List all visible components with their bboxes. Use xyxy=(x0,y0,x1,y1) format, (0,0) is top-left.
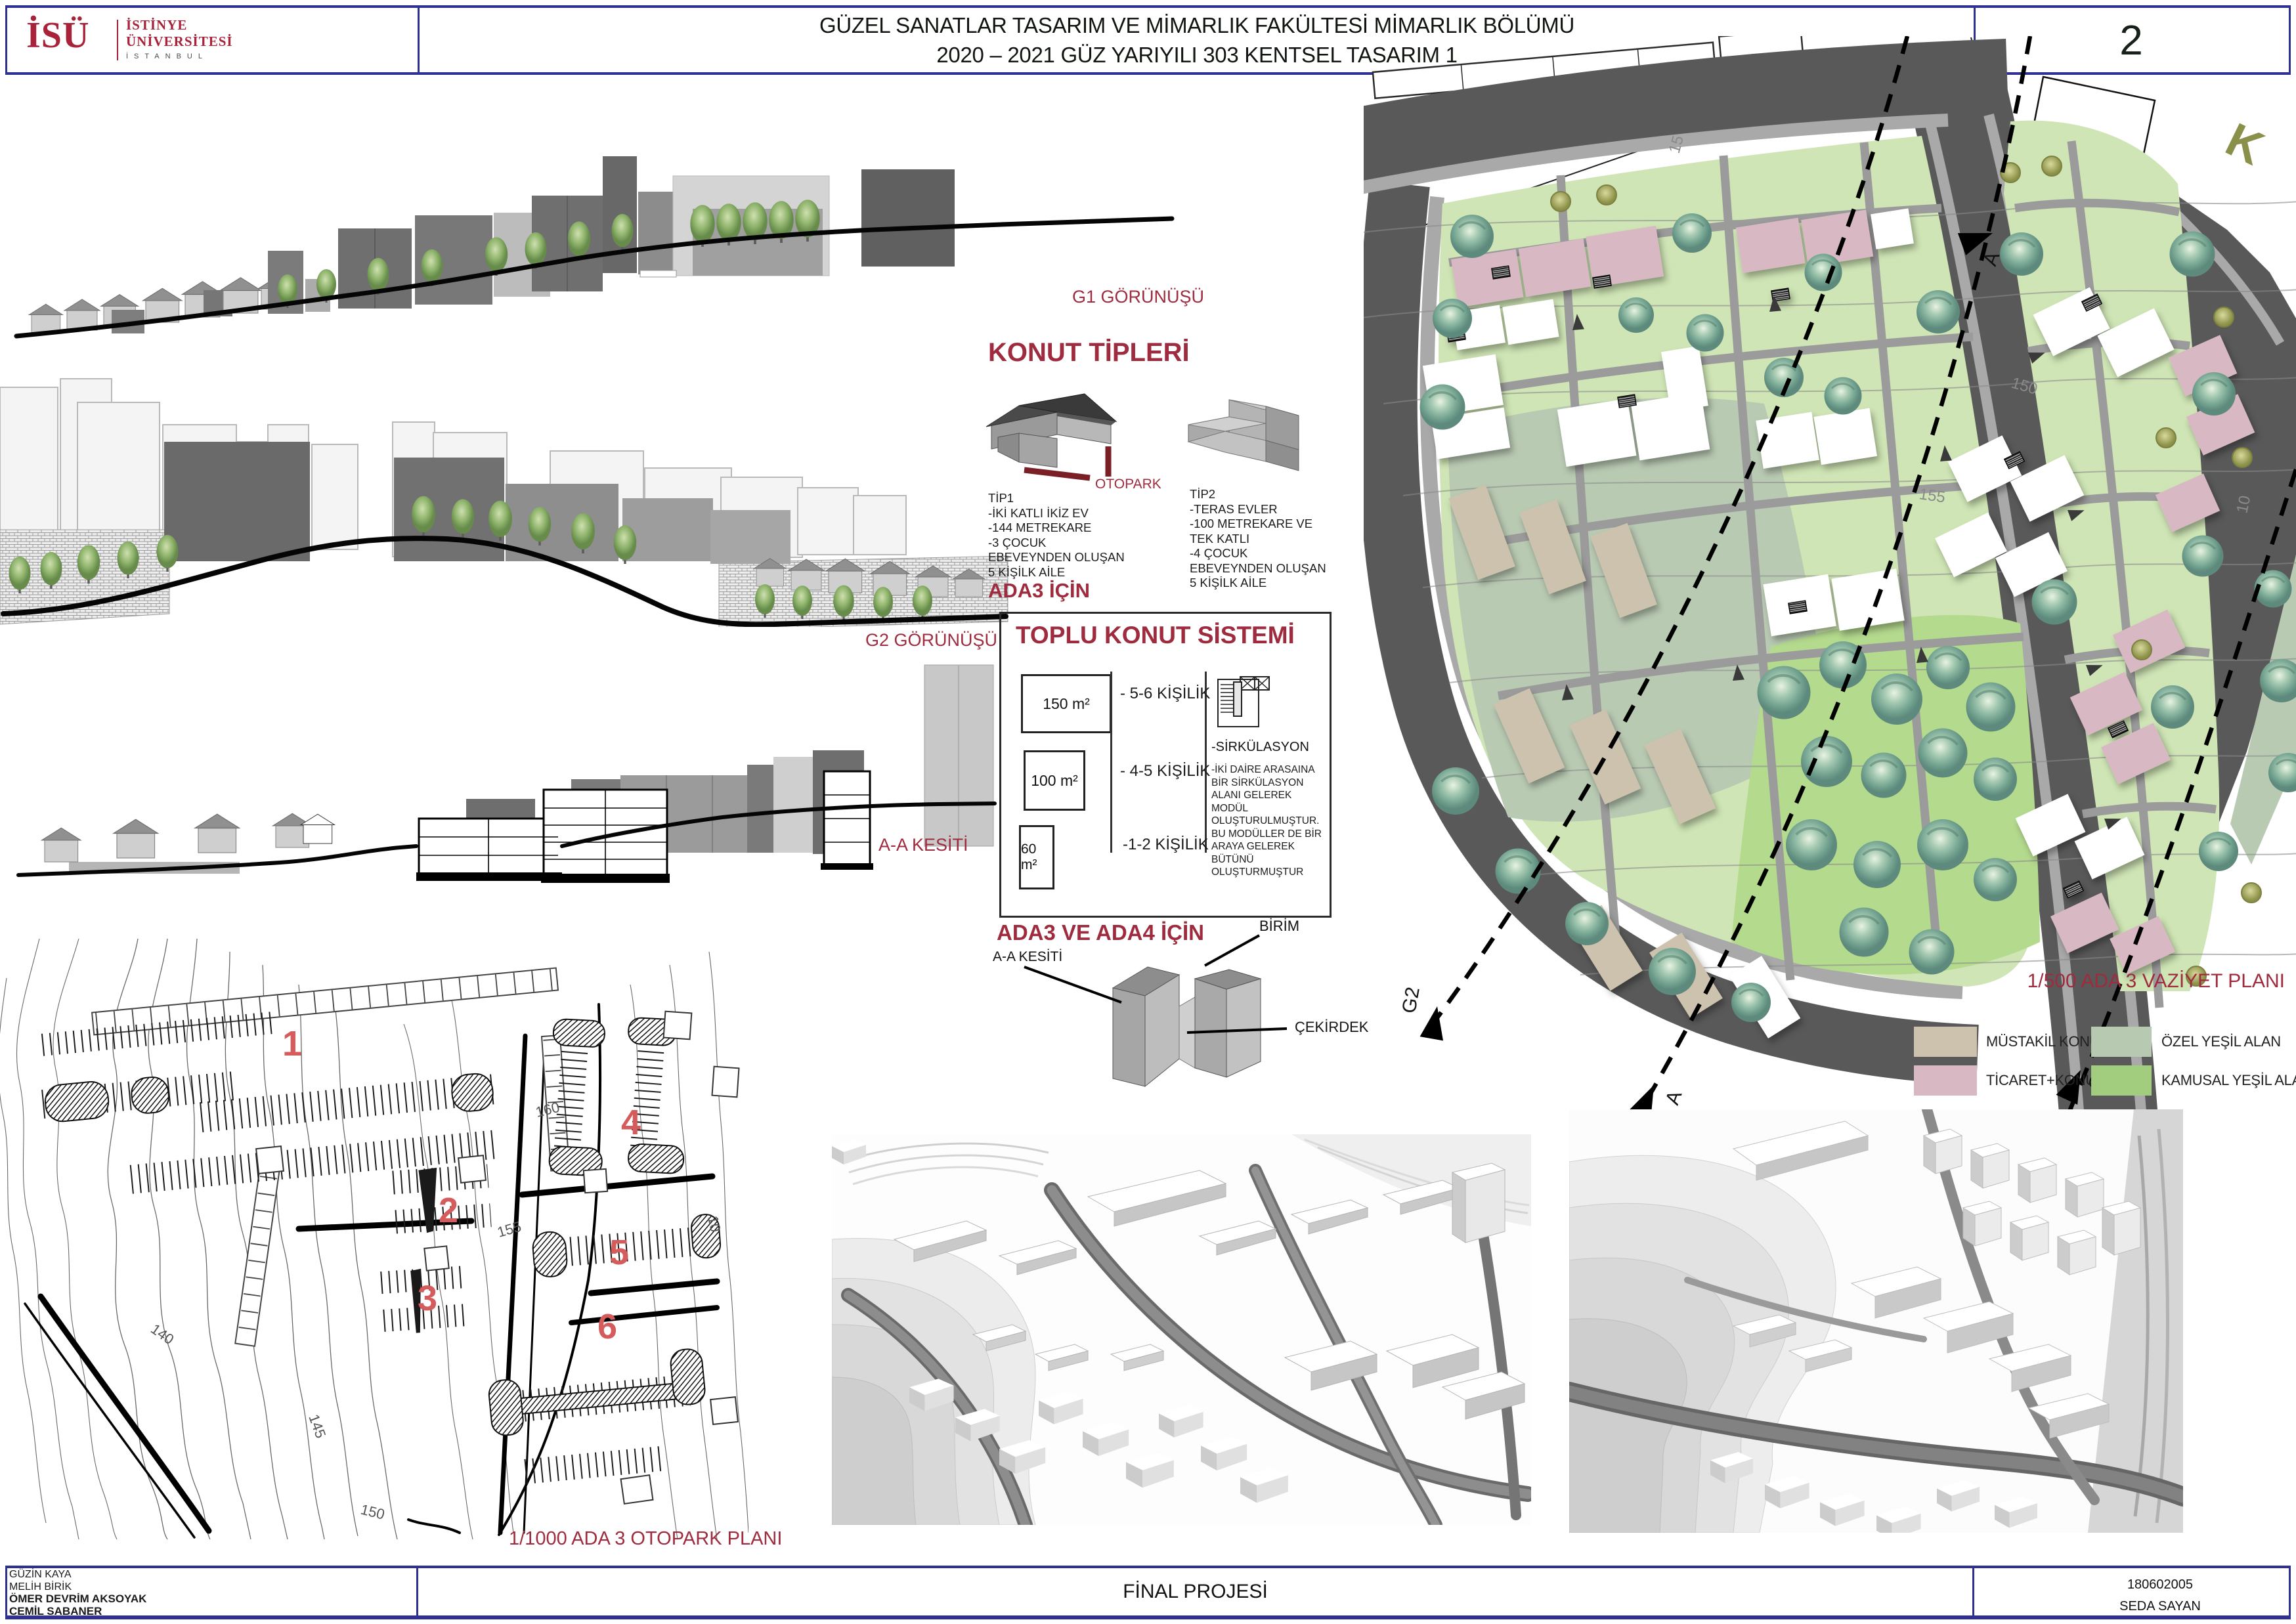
tip1-line: -3 ÇOCUK xyxy=(988,536,1125,551)
g2-elevation-label: G2 GÖRÜNÜŞÜ xyxy=(865,630,997,651)
legend-swatch-kamusal xyxy=(2091,1065,2152,1096)
otopark-row-buildings-top xyxy=(92,968,558,1035)
tip1-target-label: ADA3 İÇİN xyxy=(988,579,1090,603)
massing-render-left xyxy=(832,1134,1531,1525)
tip1-line: EBEVEYNDEN OLUŞAN xyxy=(988,550,1125,565)
svg-text:155: 155 xyxy=(1918,485,1946,506)
tip2-description: TİP2 -TERAS EVLER -100 METREKARE VE TEK … xyxy=(1190,487,1326,591)
g1-elevation-drawing xyxy=(7,79,1182,354)
massing-render-right xyxy=(1569,1109,2183,1533)
jury-name-1: GÜZİN KAYA xyxy=(9,1569,146,1581)
tip1-axon-drawing xyxy=(980,386,1134,491)
legend-label-ticaret: TİCARET+KONUT xyxy=(1986,1072,2104,1089)
tip2-line: EBEVEYNDEN OLUŞAN xyxy=(1190,561,1326,576)
otopark-plan-title: 1/1000 ADA 3 OTOPARK PLANI xyxy=(509,1528,782,1550)
logo-line3: İSTANBUL xyxy=(126,53,233,60)
student-name: SEDA SAYAN xyxy=(2029,1596,2291,1617)
unit-100: 100 m² xyxy=(1024,750,1085,811)
svg-text:145: 145 xyxy=(305,1412,329,1440)
svg-text:155: 155 xyxy=(495,1218,523,1241)
legend-label-ozel: ÖZEL YEŞİL ALAN xyxy=(2161,1033,2281,1050)
marker-g2: G2 xyxy=(1398,985,1423,1015)
header-top-rule xyxy=(5,5,2291,8)
capacity-3: -1-2 KİŞİLİK xyxy=(1123,836,1209,854)
birim-axon-drawing xyxy=(978,929,1353,1100)
tip2-name: TİP2 xyxy=(1190,487,1326,502)
unit-60: 60 m² xyxy=(1019,825,1054,889)
svg-text:140: 140 xyxy=(148,1321,177,1348)
legend-swatch-mustakil xyxy=(1914,1027,1977,1057)
legend-label-kamusal: KAMUSAL YEŞİL ALAN xyxy=(2161,1072,2296,1089)
circulation-core-icon xyxy=(1217,675,1272,729)
tip1-name: TİP1 xyxy=(988,491,1125,506)
tip2-line: TEK KATLI xyxy=(1190,532,1326,547)
toplu-konut-box: TOPLU KONUT SİSTEMİ 150 m² 100 m² 60 m² … xyxy=(999,612,1332,918)
svg-text:3: 3 xyxy=(418,1279,437,1318)
tip1-description: TİP1 -İKİ KATLI İKİZ EV -144 METREKARE -… xyxy=(988,491,1125,580)
tip2-line: -4 ÇOCUK xyxy=(1190,546,1326,561)
capacity-1: - 5-6 KİŞİLİK xyxy=(1120,685,1210,703)
parking-cluster-6 xyxy=(487,1348,711,1474)
footer-divider-2 xyxy=(1972,1566,1974,1618)
tip2-axon-drawing xyxy=(1182,384,1307,482)
tip1-line: -İKİ KATLI İKİZ EV xyxy=(988,506,1125,521)
tip2-line: -100 METREKARE VE xyxy=(1190,517,1326,532)
logo-divider xyxy=(117,20,118,60)
site-plan-title: 1/500 ADA 3 VAZİYET PLANI xyxy=(2016,970,2285,993)
svg-text:1: 1 xyxy=(282,1024,302,1063)
university-name: İSTİNYE ÜNİVERSİTESİ İSTANBUL xyxy=(126,17,233,60)
capacity-2: - 4-5 KİŞİLİK xyxy=(1120,762,1210,780)
tip2-line: 5 KİŞİLK AİLE xyxy=(1190,576,1326,591)
jury-name-2: MELİH BİRİK xyxy=(9,1581,146,1594)
aa-section-label: A-A KESİTİ xyxy=(878,835,968,855)
jury-name-3: ÖMER DEVRİM AKSOYAK xyxy=(9,1593,146,1606)
student-info: 180602005 SEDA SAYAN xyxy=(2029,1574,2291,1617)
logo-line2: ÜNİVERSİTESİ xyxy=(126,33,233,50)
svg-text:10: 10 xyxy=(704,1214,724,1233)
svg-text:2: 2 xyxy=(439,1191,458,1230)
aa-buildings xyxy=(42,665,993,883)
legend-label-mustakil: MÜSTAKİL KONUT xyxy=(1986,1033,2109,1050)
sirkulasyon-label: -SİRKÜLASYON xyxy=(1211,740,1309,755)
box-divider-1 xyxy=(1110,672,1112,853)
university-logo: İSÜ xyxy=(26,14,89,56)
north-indicator: K xyxy=(2218,113,2272,175)
svg-text:5: 5 xyxy=(609,1233,629,1272)
logo-line1: İSTİNYE xyxy=(126,17,233,33)
svg-text:10: 10 xyxy=(2233,494,2254,515)
project-title: FİNAL PROJESİ xyxy=(418,1581,1972,1603)
aa-section-drawing xyxy=(7,653,1005,896)
site-plan-drawing: A A G2 G1 15 150 155 10 K xyxy=(1364,36,2296,1116)
logo-abbr: İSÜ xyxy=(26,15,89,56)
tip1-line: 5 KİŞİLK AİLE xyxy=(988,565,1125,580)
module-description: -İKİ DAİRE ARASAINA BİR SİRKÜLASYON ALAN… xyxy=(1211,763,1324,879)
marker-a-bottom: A xyxy=(1662,1088,1687,1107)
toplu-konut-heading: TOPLU KONUT SİSTEMİ xyxy=(1016,622,1295,649)
presentation-board: İSÜ İSTİNYE ÜNİVERSİTESİ İSTANBUL GÜZEL … xyxy=(0,0,2296,1624)
housing-types-heading: KONUT TİPLERİ xyxy=(988,338,1190,368)
otopark-callout-label: OTOPARK xyxy=(1095,477,1161,492)
tip2-line: -TERAS EVLER xyxy=(1190,502,1326,517)
svg-text:6: 6 xyxy=(597,1307,617,1346)
unit-150: 150 m² xyxy=(1021,674,1112,733)
footer-left-rule xyxy=(5,1566,7,1618)
tip1-line: -144 METREKARE xyxy=(988,521,1125,536)
legend-swatch-ticaret xyxy=(1914,1065,1977,1096)
student-id: 180602005 xyxy=(2029,1574,2291,1596)
legend-swatch-ozel xyxy=(2091,1027,2152,1057)
otopark-row-buildings-left xyxy=(235,1155,281,1346)
g1-elevation-label: G1 GÖRÜNÜŞÜ xyxy=(1072,287,1204,307)
header-divider-1 xyxy=(418,5,420,75)
footer-bottom-rule xyxy=(5,1615,2291,1619)
jury-name-4: CEMİL SABANER xyxy=(9,1606,146,1618)
footer-top-rule xyxy=(5,1566,2291,1568)
svg-text:150: 150 xyxy=(359,1501,387,1523)
jury-names: GÜZİN KAYA MELİH BİRİK ÖMER DEVRİM AKSOY… xyxy=(9,1569,146,1617)
g2-elevation-drawing xyxy=(0,364,1011,627)
svg-text:4: 4 xyxy=(621,1103,641,1142)
header-left-rule xyxy=(5,5,7,75)
otopark-plan-drawing: 1 2 3 4 5 6 140 145 150 155 160 10 xyxy=(0,939,748,1539)
